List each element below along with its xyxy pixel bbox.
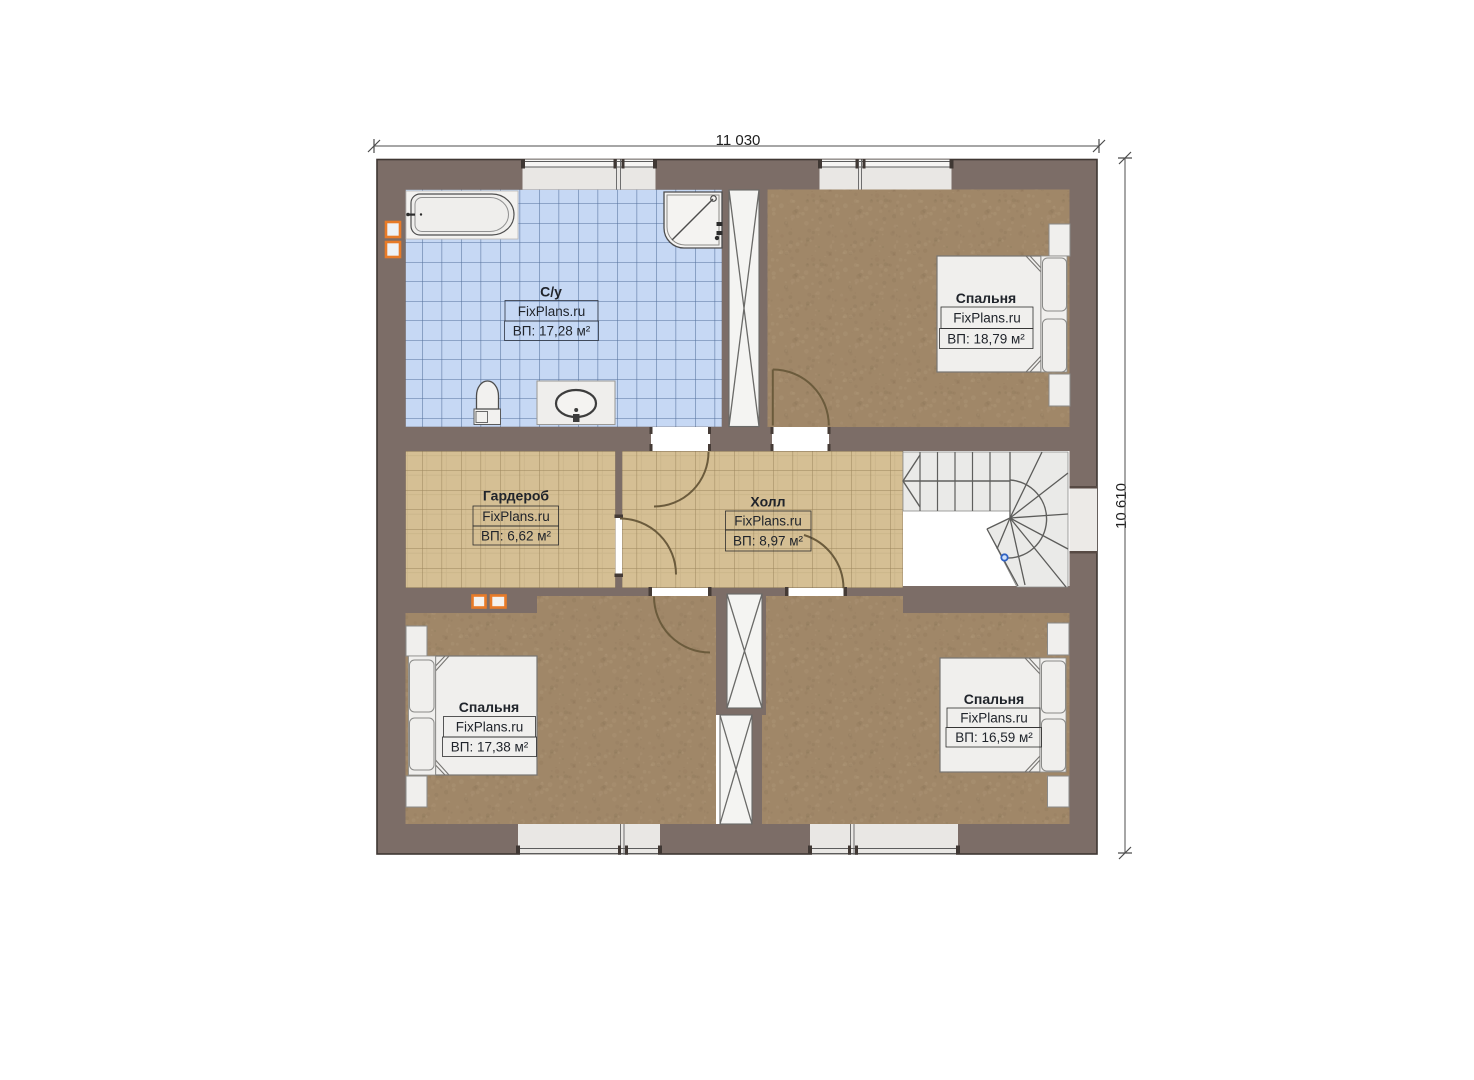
svg-text:Гардероб: Гардероб [483, 488, 550, 504]
svg-text:С/у: С/у [540, 284, 562, 300]
svg-text:FixPlans.ru: FixPlans.ru [482, 509, 550, 524]
svg-text:FixPlans.ru: FixPlans.ru [953, 311, 1021, 326]
svg-text:FixPlans.ru: FixPlans.ru [456, 720, 524, 735]
svg-text:ВП: 6,62 м²: ВП: 6,62 м² [481, 529, 552, 544]
svg-text:ВП: 8,97 м²: ВП: 8,97 м² [733, 534, 804, 549]
svg-text:ВП: 18,79 м²: ВП: 18,79 м² [947, 332, 1025, 347]
svg-text:Спальня: Спальня [964, 691, 1024, 707]
svg-text:Спальня: Спальня [459, 699, 519, 715]
svg-text:Холл: Холл [750, 494, 785, 510]
svg-text:FixPlans.ru: FixPlans.ru [518, 304, 586, 319]
svg-text:FixPlans.ru: FixPlans.ru [734, 514, 802, 529]
svg-text:10 610: 10 610 [1113, 483, 1130, 529]
svg-text:FixPlans.ru: FixPlans.ru [960, 711, 1028, 726]
svg-text:ВП: 16,59 м²: ВП: 16,59 м² [955, 730, 1033, 745]
svg-text:Спальня: Спальня [956, 290, 1016, 306]
svg-text:ВП: 17,38 м²: ВП: 17,38 м² [451, 740, 529, 755]
svg-text:ВП: 17,28 м²: ВП: 17,28 м² [513, 324, 591, 339]
